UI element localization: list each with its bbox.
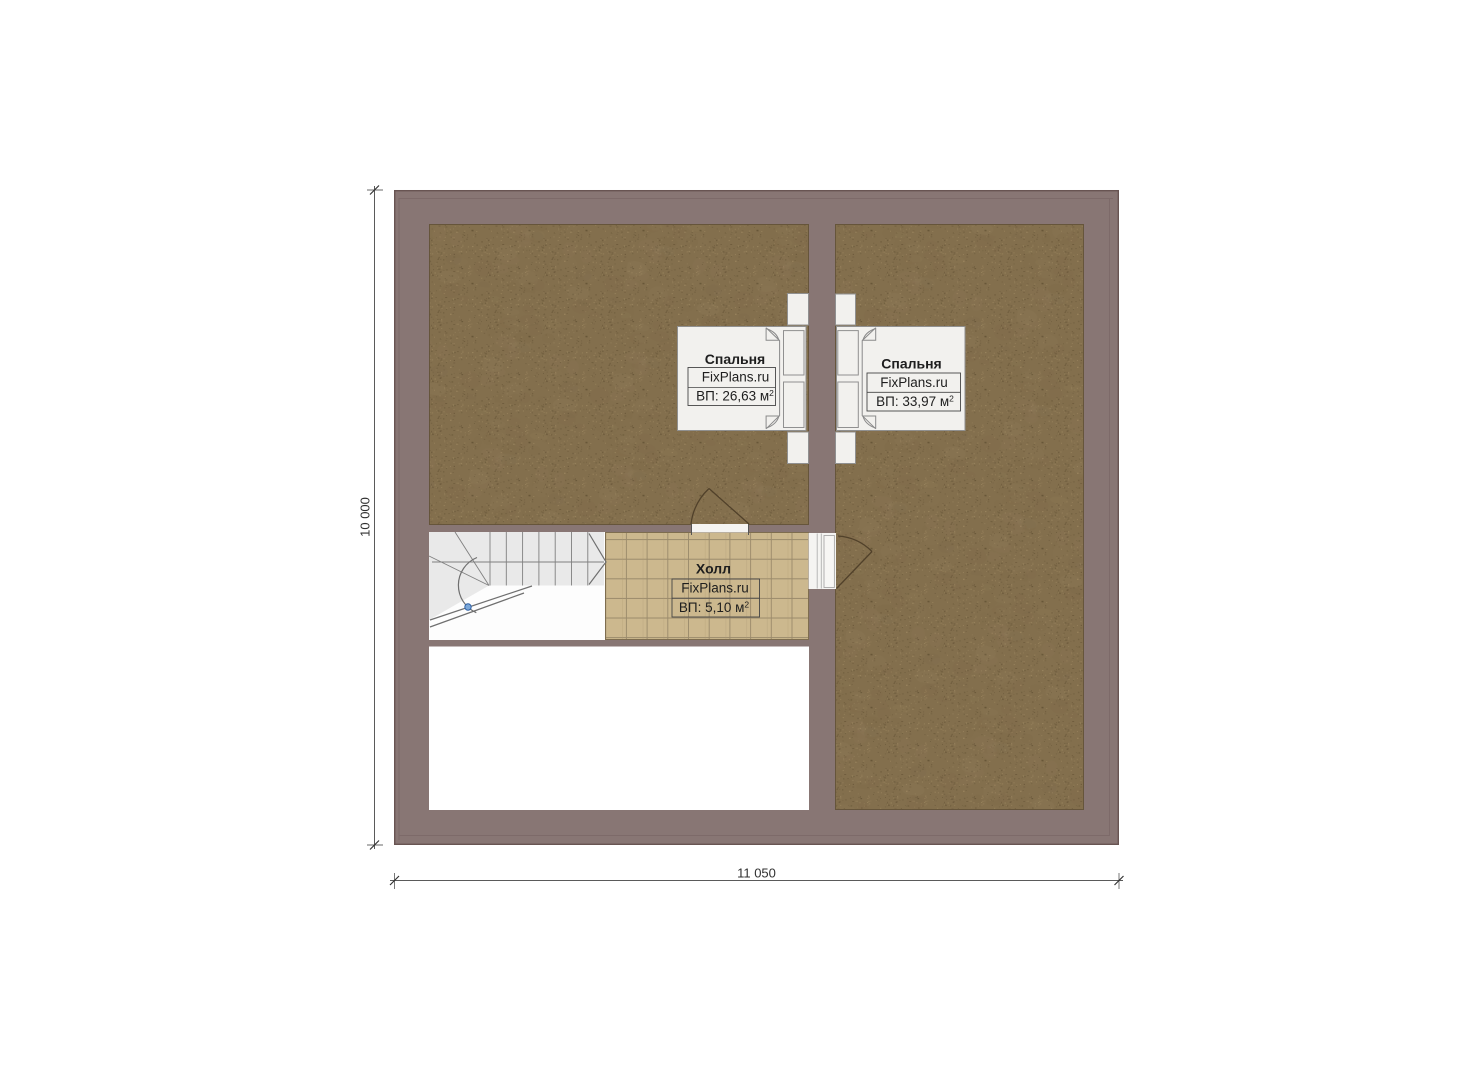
svg-text:Холл: Холл (696, 561, 731, 577)
svg-text:FixPlans.ru: FixPlans.ru (880, 375, 948, 390)
svg-text:ВП: 33,97 м2: ВП: 33,97 м2 (876, 394, 954, 410)
svg-text:ВП: 5,10 м2: ВП: 5,10 м2 (679, 600, 750, 616)
svg-text:11 050: 11 050 (737, 866, 776, 881)
svg-text:FixPlans.ru: FixPlans.ru (702, 370, 770, 385)
svg-text:Спальня: Спальня (881, 356, 941, 372)
svg-text:FixPlans.ru: FixPlans.ru (681, 581, 749, 596)
svg-text:ВП: 26,63 м2: ВП: 26,63 м2 (696, 388, 774, 404)
svg-text:Спальня: Спальня (705, 351, 765, 367)
svg-text:10 000: 10 000 (358, 497, 373, 537)
